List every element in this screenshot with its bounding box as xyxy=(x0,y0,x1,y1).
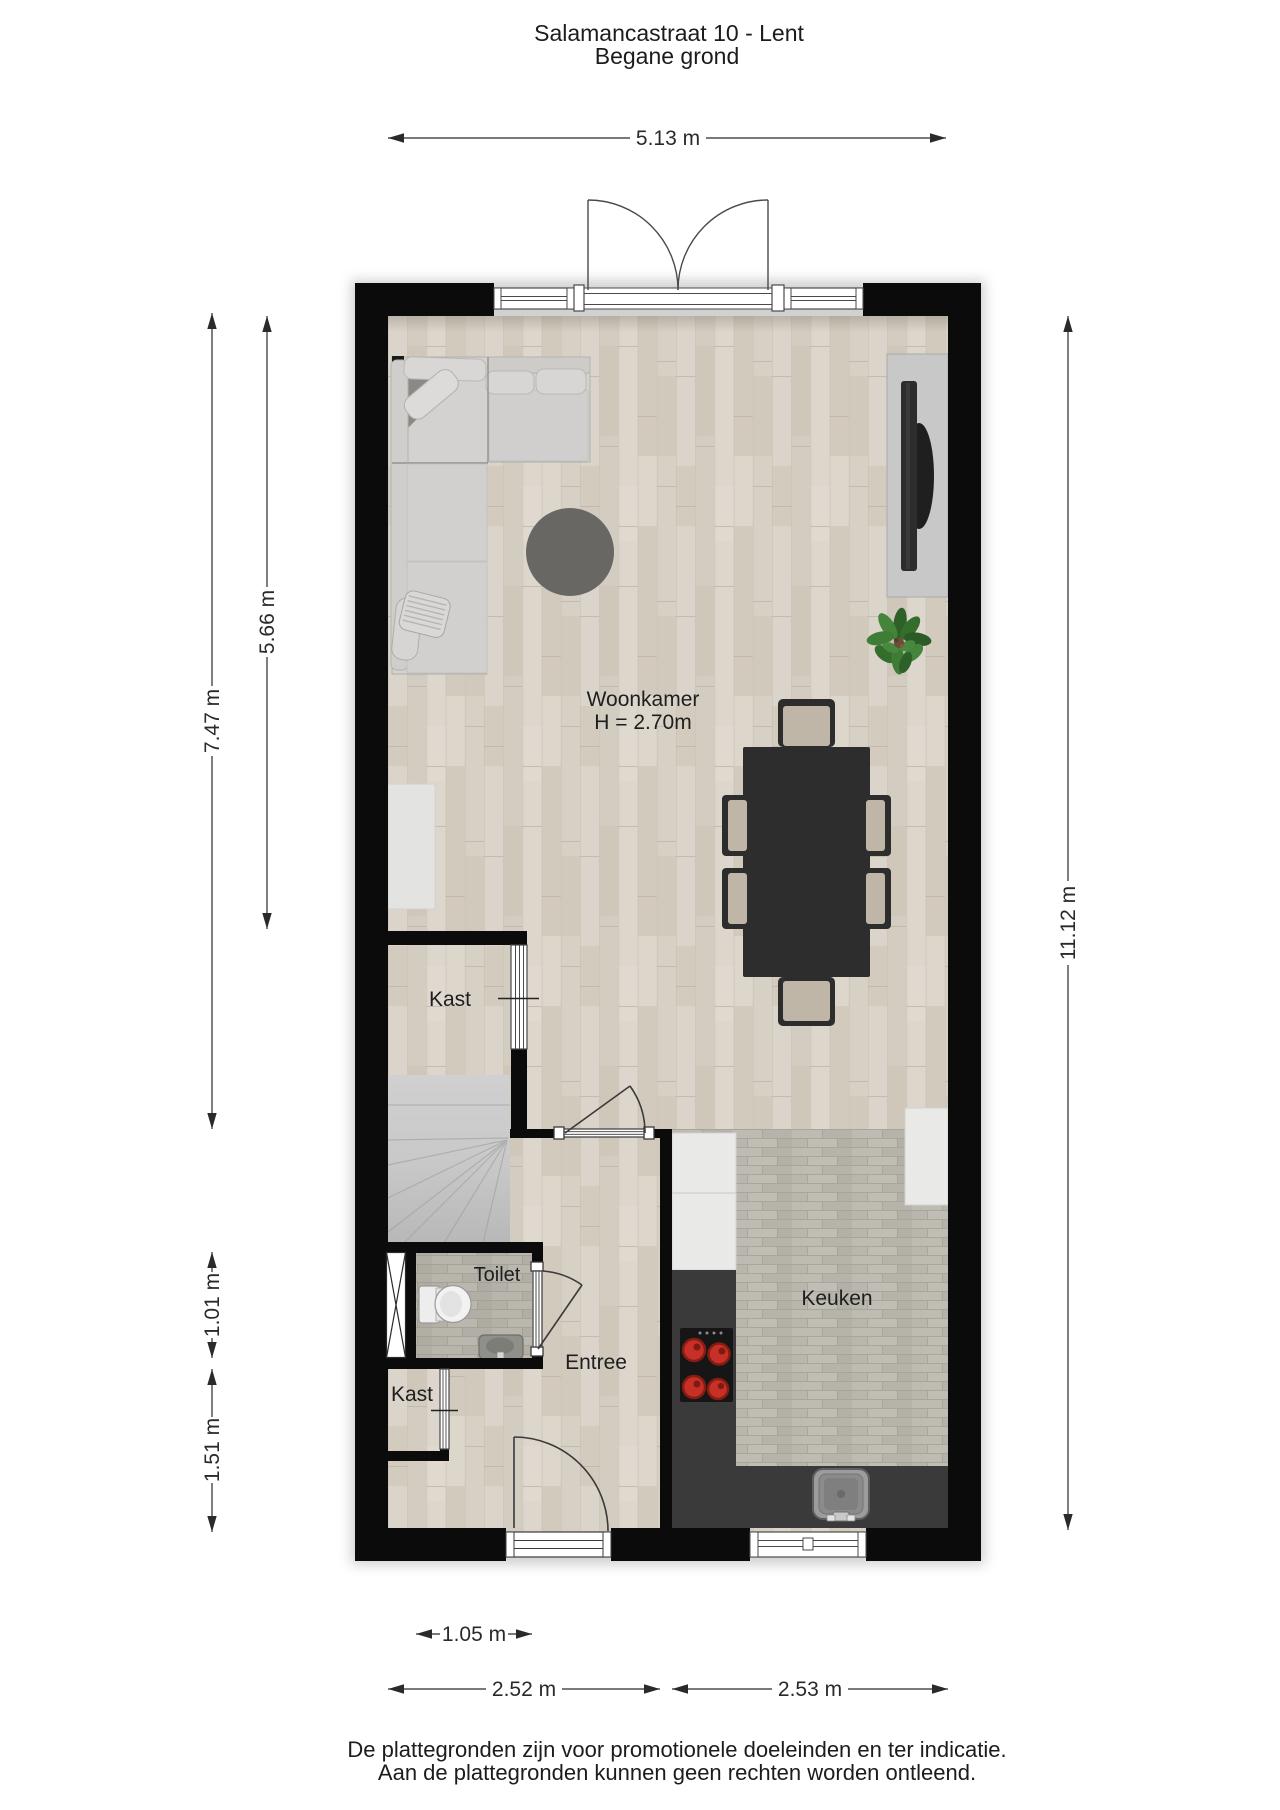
svg-text:Kast: Kast xyxy=(429,988,471,1011)
svg-text:11.12 m: 11.12 m xyxy=(1057,886,1080,960)
svg-text:Aan de plattegronden kunnen ge: Aan de plattegronden kunnen geen rechten… xyxy=(378,1760,976,1785)
svg-text:1.05 m: 1.05 m xyxy=(442,1623,506,1646)
svg-text:De plattegronden zijn voor pro: De plattegronden zijn voor promotionele … xyxy=(347,1737,1006,1762)
svg-text:Entree: Entree xyxy=(565,1351,627,1374)
svg-text:Toilet: Toilet xyxy=(474,1264,521,1286)
svg-text:2.53 m: 2.53 m xyxy=(778,1678,842,1701)
svg-text:1.01 m: 1.01 m xyxy=(201,1273,224,1337)
svg-text:Begane grond: Begane grond xyxy=(595,43,740,69)
svg-text:5.13 m: 5.13 m xyxy=(636,127,700,150)
svg-text:2.52 m: 2.52 m xyxy=(492,1678,556,1701)
svg-text:Kast: Kast xyxy=(391,1383,433,1406)
svg-text:5.66 m: 5.66 m xyxy=(256,590,279,654)
svg-text:Keuken: Keuken xyxy=(801,1287,872,1310)
svg-text:H = 2.70m: H = 2.70m xyxy=(594,711,691,734)
svg-text:7.47 m: 7.47 m xyxy=(201,689,224,753)
svg-text:Woonkamer: Woonkamer xyxy=(587,688,700,711)
svg-text:1.51 m: 1.51 m xyxy=(201,1418,224,1482)
